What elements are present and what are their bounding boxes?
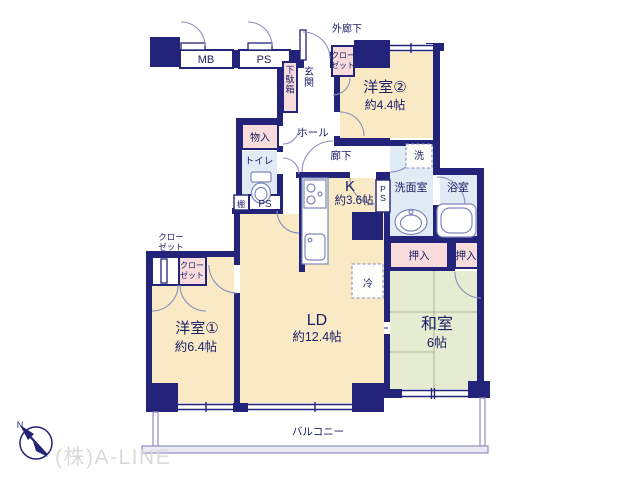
label-refrigerator: 冷 — [363, 277, 373, 290]
label-kitchen-size: 約3.6帖 — [335, 193, 374, 207]
entrance-door-leaf — [300, 30, 306, 60]
compass-icon: N — [17, 420, 52, 459]
balcony-rail — [142, 446, 488, 453]
label-roka: 廊下 — [331, 149, 352, 162]
label-hall: ホール — [297, 127, 329, 139]
label-closet2-line2: ゼット — [331, 60, 355, 70]
label-senmenshitsu: 洗面室 — [395, 180, 428, 194]
label-yokushitsu: 浴室 — [447, 180, 469, 194]
label-ps-niche: PS — [380, 184, 386, 203]
label-closet-in-line2: ゼット — [180, 270, 204, 280]
compass-north-label: N — [17, 420, 24, 430]
floor-plan: N 外廊下 MB PS 玄関 下駄箱 クロー ゼット 洋室② 約4.4帖 物入 … — [0, 0, 640, 480]
label-tana: 棚 — [237, 199, 245, 209]
label-ld-size: 約12.4帖 — [292, 329, 341, 344]
label-ps-top: PS — [257, 54, 272, 66]
window-washitsu — [402, 388, 468, 399]
window-yoshitsu2 — [390, 43, 433, 53]
label-washitsu-size: 6帖 — [427, 335, 447, 350]
watermark: (株)A-LINE — [55, 446, 171, 469]
closet-door-leaf — [161, 259, 167, 283]
bathtub-icon — [437, 204, 476, 237]
kitchen-counter — [302, 178, 328, 264]
label-closet-out-line2: ゼット — [158, 242, 184, 252]
label-yoshitsu1-name: 洋室① — [175, 320, 218, 337]
ps-door-leaf — [248, 43, 272, 50]
window-yoshitsu1 — [178, 402, 233, 412]
balcony-post-right — [480, 398, 485, 446]
label-genkan: 玄関 — [304, 65, 314, 89]
vanity-sink-icon — [395, 210, 427, 235]
label-yoshitsu1-size: 約6.4帖 — [175, 339, 217, 354]
label-monoire: 物入 — [250, 131, 270, 144]
mb-door-leaf — [181, 43, 205, 50]
label-gairoka: 外廊下 — [332, 22, 362, 35]
label-closet2-line1: クロー — [331, 51, 355, 60]
label-mb: MB — [198, 54, 215, 66]
label-closet-in-line1: クロー — [180, 261, 204, 270]
label-kitchen-name: K — [345, 178, 355, 195]
label-ps-mid: PS — [258, 199, 272, 210]
label-closet-out-line1: クロー — [158, 232, 184, 242]
label-washer: 洗 — [414, 150, 424, 162]
label-oshiire-2: 押入 — [456, 249, 477, 262]
label-toilet: トイレ — [245, 156, 274, 167]
floor-plan-page: N 外廊下 MB PS 玄関 下駄箱 クロー ゼット 洋室② 約4.4帖 物入 … — [0, 0, 640, 480]
balcony-post-left — [153, 412, 158, 446]
label-yoshitsu2-size: 約4.4帖 — [365, 97, 406, 112]
label-ld-name: LD — [307, 312, 327, 329]
label-balcony: バルコニー — [292, 426, 344, 438]
label-oshiire-1: 押入 — [409, 249, 430, 262]
label-washitsu-name: 和室 — [421, 315, 453, 333]
window-ld — [248, 402, 352, 412]
label-getabako: 下駄箱 — [285, 65, 294, 94]
label-yoshitsu2-name: 洋室② — [363, 79, 406, 96]
